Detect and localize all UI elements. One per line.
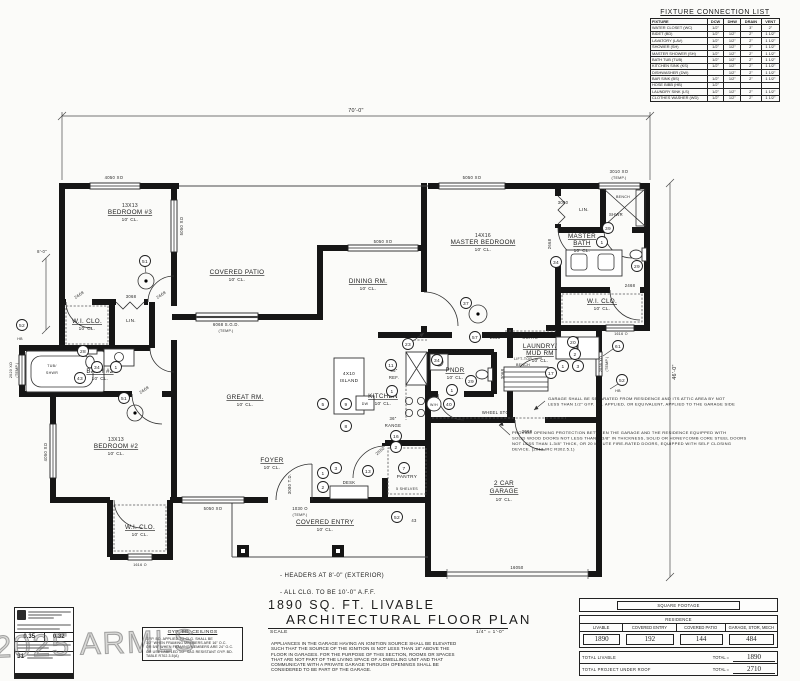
tag-sgd: 6068 S.G.D.: [213, 322, 239, 327]
desk-label: DESK: [343, 480, 356, 485]
appliance-note-line: SUCH THAT THE SOURCE OF THE IGNITION IS …: [271, 646, 456, 651]
room-bed3-ceil: 10' CL.: [122, 217, 139, 222]
gyp-note-line: TABLE R702.3.5(A): [144, 654, 241, 658]
keynote-52-left: 52: [17, 320, 28, 331]
keynote-1-pndr: 1: [447, 385, 458, 396]
master-bath-counter: [566, 250, 622, 276]
svg-text:2: 2: [395, 445, 398, 451]
fixture-dcw: 1/2": [707, 95, 724, 101]
svg-text:13: 13: [365, 469, 371, 475]
hb-label-left: HB: [17, 337, 23, 341]
sqft-header-patio: COVERED PATIO: [677, 624, 726, 631]
svg-text:11: 11: [388, 363, 394, 369]
room-pndr-ceil: 10' CL.: [447, 375, 464, 380]
entry-post: [237, 545, 249, 557]
keynote-9: 9: [341, 399, 352, 410]
range-label-1: 36": [389, 416, 396, 421]
lift-bench-2: BENCH: [516, 363, 530, 367]
toilet-icon: [476, 368, 493, 381]
keynote-57: 57: [470, 332, 481, 343]
room-kitchen-ceil: 10' CL.: [375, 401, 392, 406]
room-lin-master: LIN.: [579, 207, 589, 212]
room-dining-ceil: 10' CL.: [360, 286, 377, 291]
tag-3068-lin2: 3068: [126, 294, 137, 299]
keynote-51-bed3: 51: [140, 256, 151, 267]
room-patio-ceil: 10' CL.: [229, 277, 246, 282]
keynote-1-foyer: 1: [318, 468, 329, 479]
room-lin2: LIN.: [126, 318, 136, 323]
window-4050-bed3: [90, 183, 140, 189]
desk-icon: [330, 486, 368, 499]
sliding-glass-door: [196, 313, 258, 321]
svg-text:52: 52: [394, 515, 400, 521]
svg-text:34: 34: [553, 260, 559, 266]
sqft-title: SQUARE FOOTAGE: [617, 601, 739, 610]
keynote-13: 13: [363, 466, 374, 477]
room-laundry-2: MUD RM: [526, 350, 554, 357]
gyp-note-title: GYP. BD. CEILINGS: [144, 630, 241, 635]
keynote-1-mbath: 1: [597, 237, 608, 248]
tag-5050-front: 5050 XO: [204, 506, 223, 511]
keynote-51-bed2: 51: [119, 393, 130, 404]
title-rule: [268, 628, 508, 629]
sheet-title-line2: ARCHITECTURAL FLOOR PLAN: [286, 612, 531, 627]
room-bed2-ceil: 10' CL.: [108, 451, 125, 456]
tag-3010: 3010 XO: [610, 169, 629, 174]
island-label-2: ISLAND: [340, 378, 359, 383]
svg-text:17: 17: [548, 371, 554, 377]
total-livable-value: 1890: [733, 653, 775, 662]
tag-2668-master: 2668: [547, 238, 552, 249]
svg-text:5: 5: [322, 402, 325, 408]
tag-1030: 1030 O: [292, 506, 308, 511]
garage-prot-note-3: NOT LESS THAN 1-3/8" THICK, OR 20 MINUTE…: [512, 441, 731, 446]
svg-text:43: 43: [77, 376, 83, 382]
room-foyer: FOYER: [260, 457, 283, 464]
toilet-icon: [630, 248, 647, 261]
garage-prot-note-1: PROVIDE OPENING PROTECTION BETWEEN THE G…: [512, 430, 726, 435]
svg-text:29: 29: [634, 264, 640, 270]
svg-text:51: 51: [121, 396, 127, 402]
island-label-1: 4X10: [343, 371, 355, 376]
svg-text:29: 29: [468, 379, 474, 385]
tag-1030-temp: (TEMP.): [292, 513, 307, 517]
tag-16050: 16050: [510, 565, 524, 570]
svg-text:1: 1: [391, 389, 394, 395]
keynote-11: 11: [386, 360, 397, 371]
room-dining: DINING RM.: [349, 278, 387, 285]
tag-1616-master: 1616 O: [614, 332, 628, 336]
ceiling-fan-icon: [469, 305, 487, 323]
tag-2668-bed3: 2668: [155, 289, 167, 299]
room-foyer-ceil: 10' CL.: [264, 465, 281, 470]
tag-2020: 2020 XO: [9, 362, 13, 378]
fixture-list-title: FIXTURE CONNECTION LIST: [650, 9, 780, 16]
sqft-value-livable: 1890: [583, 634, 620, 645]
keynote-52-entry: 52: [392, 512, 403, 523]
total-livable-label: TOTAL LIVABLE: [582, 655, 713, 660]
svg-text:28: 28: [80, 349, 86, 355]
bench-label: BENCH: [616, 195, 630, 199]
room-bath2-ceil: 10' CL.: [92, 376, 109, 381]
keynote-1-bath2: 1: [111, 362, 122, 373]
keynote-29-pndr: 29: [466, 376, 477, 387]
svg-text:23: 23: [405, 342, 411, 348]
svg-text:16: 16: [393, 434, 399, 440]
keynote-3-desk: 3: [331, 463, 342, 474]
stamp-value-1: 0.35: [15, 633, 45, 641]
entry-post: [332, 545, 344, 557]
svg-text:1: 1: [322, 471, 325, 477]
room-entry: COVERED ENTRY: [296, 519, 355, 526]
keynote-52-right: 52: [617, 375, 628, 386]
gyp-bd-ceilings-note: GYP. BD. CEILINGS GYP. BD. APPLIED TO CL…: [142, 627, 243, 661]
pantry-shelves: 5 SHELVES: [396, 487, 418, 491]
ref-label-2: REF.: [389, 375, 399, 380]
range-icon: [405, 397, 424, 416]
window-5050-bed3-east: [171, 200, 177, 252]
total-roof-value: 2710: [733, 665, 775, 674]
total-livable-row: TOTAL LIVABLE TOTAL = 1890: [580, 652, 777, 664]
tag-sgd-temp: (TEMP.): [218, 329, 233, 333]
keynote-2-foyer: 2: [318, 482, 329, 493]
keynote-28: 28: [78, 346, 89, 357]
square-footage-table: SQUARE FOOTAGE RESIDENCE LIVABLE COVERED…: [579, 598, 778, 676]
tag-4050-top: 4050 XO: [105, 175, 124, 180]
svg-text:57: 57: [472, 335, 478, 341]
sqft-value-entry: 192: [626, 634, 673, 645]
room-wiclo-master: W.I. CLO.: [587, 298, 617, 305]
room-wiclo3-ceil: 10' CL.: [132, 532, 149, 537]
tag-2020-temp: (TEMP.): [15, 362, 19, 377]
dim-left: 8'-0": [37, 249, 47, 254]
appliance-note: APPLIANCES IN THE GARAGE HAVING AN IGNIT…: [271, 641, 456, 673]
tag-2036: 2036 XO: [599, 356, 603, 372]
keynote-34-bath2: 34: [92, 362, 103, 373]
room-pndr: PNDR: [445, 367, 464, 374]
lift-bench-1: LIFT-TOP: [514, 357, 532, 361]
window-3010-shower: [599, 183, 640, 189]
svg-text:1: 1: [115, 365, 118, 371]
keynote-37: 37: [461, 298, 472, 309]
total-eq: TOTAL =: [713, 655, 729, 660]
tag-3060: 3060: [558, 200, 569, 205]
dim-top: 70'-0": [348, 108, 364, 114]
sqft-header-garage: GARAGE, STOR, MECH: [726, 624, 777, 631]
room-wiclo-master-ceil: 10' CL.: [594, 306, 611, 311]
svg-text:2: 2: [574, 352, 577, 358]
dim-right: 46'-0": [672, 364, 678, 380]
room-pantry: PANTRY: [397, 474, 418, 479]
keynote-16: 16: [391, 431, 402, 442]
stamp-footer-bar: [15, 673, 73, 678]
tub-label-2: SHWR: [46, 371, 58, 375]
room-bed2: BEDROOM #2: [94, 443, 138, 450]
room-wiclo3: W.I. CLO.: [125, 524, 155, 531]
svg-text:34: 34: [434, 358, 440, 364]
window-1616-wiclo-bed2: [128, 554, 152, 560]
tag-2668-hall: 2668: [490, 335, 501, 340]
stamp-value-2: 0.32: [45, 633, 74, 641]
garage-prot-note-4: DEVICE. (2012 IRC R302.5.1): [512, 447, 575, 452]
keynote-34-pndr: 34: [432, 355, 443, 366]
svg-text:40: 40: [446, 402, 452, 408]
keynote-34-mbath: 34: [551, 257, 562, 268]
lift-top-bench: [504, 367, 548, 391]
svg-text:7: 7: [403, 466, 406, 472]
fixture-connection-list: FIXTURE CONNECTION LIST FIXTURE DCW DHW …: [650, 9, 780, 102]
room-bed3: BEDROOM #3: [108, 209, 152, 216]
room-master: MASTER BEDROOM: [451, 239, 516, 246]
tag-2668-wiclo2: 2668: [73, 289, 85, 299]
tag-2468: 2468: [625, 283, 636, 288]
shwr-label: SHWR: [609, 212, 623, 217]
range-label-2: RANGE: [385, 423, 401, 428]
tag-5050-dining: 5050 XO: [374, 239, 393, 244]
fixture-row: CLOTHES WASHER (WD) 1/2" 1/2" 2" 1 1/2": [651, 95, 780, 101]
keynote-17: 17: [546, 368, 557, 379]
tub-label-1: TUB/: [47, 364, 56, 368]
svg-text:8: 8: [345, 424, 348, 430]
floor-plan-sheet: 70'-0" 46'-0" 8'-0" 13X13 BEDROOM #3 10'…: [0, 0, 800, 681]
tag-2036-temp: (TEMP.): [605, 356, 609, 371]
keynote-3-laundry: 3: [573, 361, 584, 372]
keynote-5: 5: [318, 399, 329, 410]
window-5050-master: [439, 183, 505, 189]
hb-label-right: HB: [615, 389, 621, 393]
garage-prot-note-2: SOLID WOOD DOORS NOT LESS THAN 1-3/8" IN…: [512, 436, 747, 441]
tag-3010-temp: (TEMP.): [611, 176, 626, 180]
room-master-ceil: 10' CL.: [475, 247, 492, 252]
svg-text:1: 1: [601, 240, 604, 246]
ceiling-note: - ALL CLG. TO BE 10'-0" A.F.F.: [280, 589, 375, 596]
keynote-29-mbath: 29: [632, 261, 643, 272]
keynote-23: 23: [403, 339, 414, 350]
keynote-2-laundry: 2: [570, 349, 581, 360]
window-5050-front: [182, 497, 244, 503]
window-1616-wiclo-master: [606, 325, 634, 331]
room-great-ceil: 10' CL.: [237, 402, 254, 407]
tag-5050-bed3e: 5050 XO: [179, 216, 184, 235]
wheel-stop-label: WHEEL STOP: [482, 410, 512, 415]
sqft-value-patio: 144: [680, 634, 723, 645]
total-roof-row: TOTAL PROJECT UNDER ROOF TOTAL = 2710: [580, 664, 777, 675]
svg-text:1: 1: [562, 364, 565, 370]
insulation-stamp: 0.35 0.32 31: [14, 607, 74, 679]
room-garage-1: 2 CAR: [494, 480, 514, 487]
keynote-43-tub: 43: [75, 373, 86, 384]
keynote-1-kitchen: 1: [387, 386, 398, 397]
ceiling-fan-icon: [138, 273, 154, 289]
tag-3068-laundry: 3068: [500, 368, 505, 379]
sheet-title-line1: 1890 SQ. FT. LIVABLE: [268, 598, 435, 612]
room-mbath-ceil: 10' CL.: [574, 248, 591, 253]
svg-text:52: 52: [19, 323, 25, 329]
svg-text:51: 51: [142, 259, 148, 265]
keynote-1-laundry: 1: [558, 361, 569, 372]
garage-sep-note-2: LESS THAN 1/2" GYP. BD. APPLIED, OR EQUI…: [548, 402, 735, 407]
room-wiclo2-ceil: 10' CL.: [79, 326, 96, 331]
svg-text:61: 61: [615, 344, 621, 350]
room-garage-2: GARAGE: [490, 488, 519, 495]
sqft-value-garage: 484: [729, 634, 774, 645]
stamp-logo: [17, 610, 26, 620]
fixture-vent: 1 1/2": [761, 95, 779, 101]
svg-text:9: 9: [345, 402, 348, 408]
fixture-dhw: 1/2": [724, 95, 741, 101]
svg-text:1: 1: [451, 388, 454, 394]
tag-5050-master: 5050 XO: [463, 175, 482, 180]
window-4050-bed2: [50, 424, 56, 478]
room-patio: COVERED PATIO: [210, 269, 265, 276]
room-entry-ceil: 10' CL.: [317, 527, 334, 532]
scale-label: SCALE: [270, 630, 288, 635]
fixture-drain: 2": [741, 95, 762, 101]
svg-text:37: 37: [463, 301, 469, 307]
tag-4050-bed2: 4050 XO: [43, 442, 48, 461]
svg-text:52: 52: [619, 378, 625, 384]
keynote-7: 7: [399, 463, 410, 474]
keynote-40: 40: [444, 399, 455, 410]
coats-label: COATS: [522, 335, 538, 340]
tag-2668-bed2: 2668: [138, 384, 150, 394]
total-eq: TOTAL =: [713, 667, 729, 672]
keynote-61: 61: [613, 341, 624, 352]
tag-3080: 3080 T.D.: [287, 474, 292, 495]
room-laundry-ceil: 10' CL.: [532, 358, 549, 363]
headers-note: - HEADERS AT 8'-0" (EXTERIOR): [280, 572, 384, 579]
wh-label: W/H: [430, 403, 438, 407]
ref-43: 43: [411, 518, 417, 523]
appliance-note-line: CONSIDERED TO BE PART OF THE GARAGE.: [271, 667, 456, 672]
keynote-39: 39: [603, 223, 614, 234]
dw-label: DW: [362, 402, 369, 406]
svg-text:3: 3: [335, 466, 338, 472]
sqft-subtitle: RESIDENCE: [580, 616, 777, 624]
room-garage-ceil: 10' CL.: [496, 497, 513, 502]
window-2020-tub: [19, 355, 25, 385]
svg-text:34: 34: [94, 365, 100, 371]
total-roof-label: TOTAL PROJECT UNDER ROOF: [582, 667, 713, 672]
keynote-2-pantry: 2: [391, 442, 402, 453]
garage-sep-note-1: GARAGE SHALL BE SEPARATED FROM RESIDENCE…: [548, 396, 725, 401]
sqft-header-livable: LIVABLE: [580, 624, 623, 631]
svg-text:20: 20: [570, 340, 576, 346]
svg-text:2: 2: [322, 485, 325, 491]
stamp-value-3: 31: [17, 653, 24, 660]
window-5050-dining: [348, 245, 418, 251]
room-mbath-1: MASTER: [568, 233, 596, 240]
svg-text:3: 3: [577, 364, 580, 370]
tag-1616-wiclo3: 1616 O: [133, 563, 147, 567]
sqft-header-entry: COVERED ENTRY: [623, 624, 676, 631]
refrigerator-icon: [406, 352, 427, 385]
room-laundry-1: LAUNDRY/: [523, 343, 557, 350]
room-mbath-2: BATH: [573, 240, 591, 247]
keynote-20: 20: [568, 337, 579, 348]
keynote-8: 8: [341, 421, 352, 432]
fixture-name: CLOTHES WASHER (WD): [651, 95, 708, 101]
room-wiclo2: W.I. CLO.: [72, 318, 102, 325]
room-great: GREAT RM.: [226, 394, 263, 401]
svg-text:39: 39: [605, 226, 611, 232]
scale-value: 1/4" = 1'-0": [476, 630, 504, 635]
floor-plan-drawing: 70'-0" 46'-0" 8'-0" 13X13 BEDROOM #3 10'…: [0, 0, 800, 681]
